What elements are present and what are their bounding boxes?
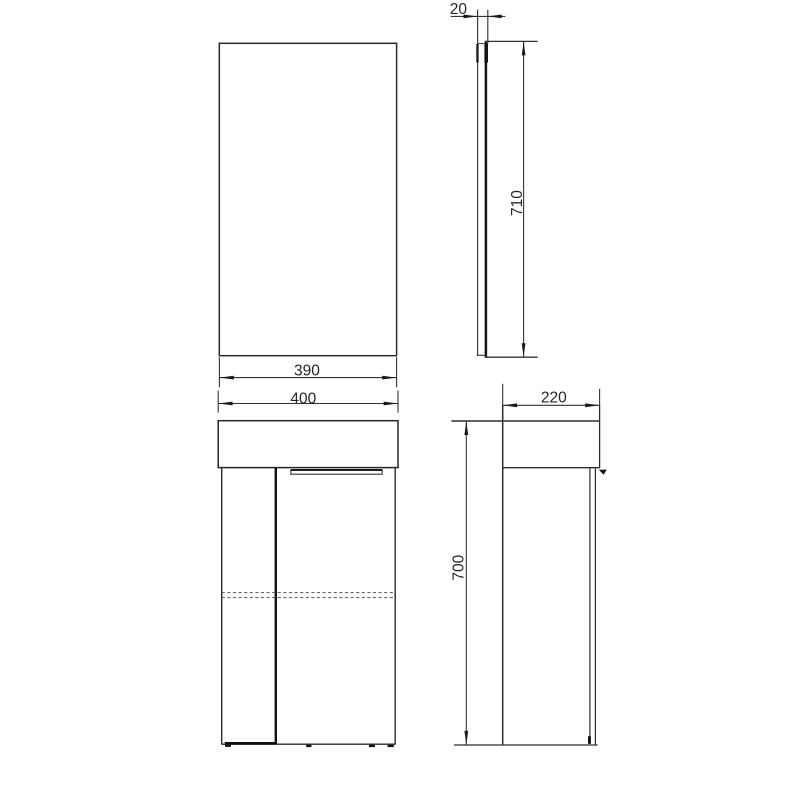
svg-text:390: 390 [294,363,320,380]
svg-text:700: 700 [450,554,467,580]
svg-text:710: 710 [509,190,526,216]
svg-text:220: 220 [541,389,567,406]
svg-text:20: 20 [450,1,468,18]
svg-text:400: 400 [290,390,316,407]
